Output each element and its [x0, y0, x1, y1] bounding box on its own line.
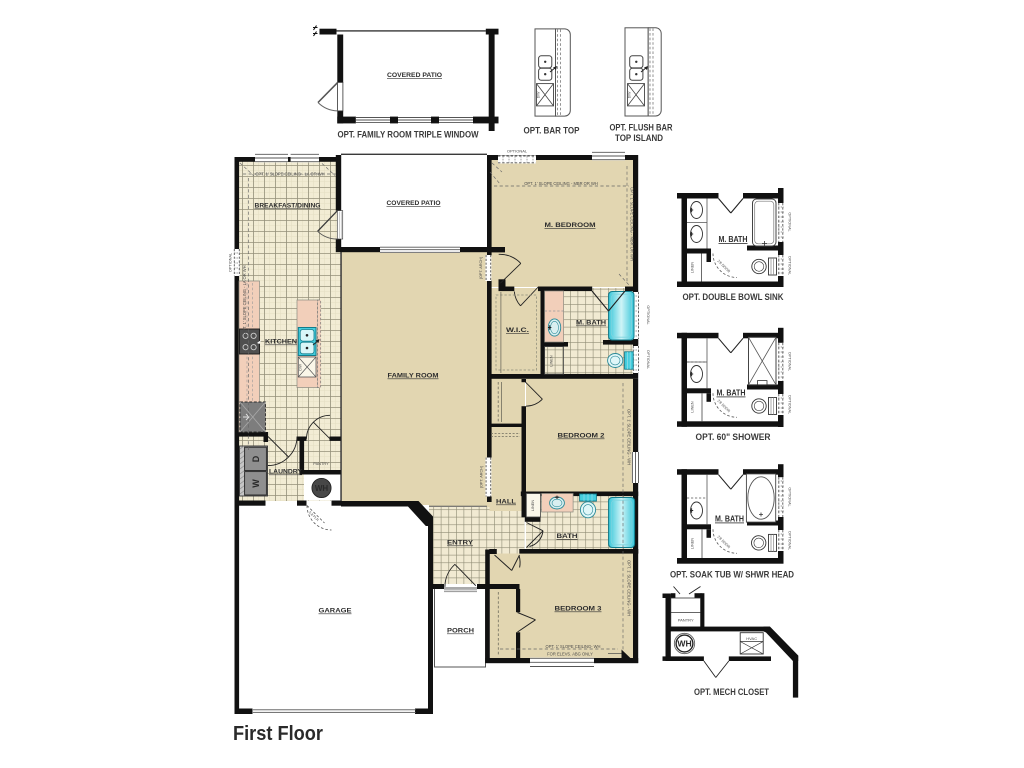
svg-text:WH: WH — [677, 639, 691, 649]
svg-text:M. BATH: M. BATH — [717, 389, 746, 398]
svg-text:LINEN: LINEN — [550, 355, 554, 366]
svg-text:BREAKFAST/DINING: BREAKFAST/DINING — [255, 204, 321, 210]
svg-text:OPTIONAL: OPTIONAL — [787, 395, 791, 414]
svg-text:TOP ISLAND: TOP ISLAND — [615, 133, 663, 143]
svg-text:OPTIONAL: OPTIONAL — [787, 487, 791, 506]
svg-text:KITCHEN: KITCHEN — [265, 340, 297, 346]
svg-text:GARAGE: GARAGE — [319, 608, 352, 615]
svg-text:OPTIONAL: OPTIONAL — [787, 256, 791, 275]
svg-text:OPT. 1' SLOPE CEILING- WH: OPT. 1' SLOPE CEILING- WH — [546, 644, 601, 649]
svg-text:PANTRY: PANTRY — [313, 461, 329, 466]
svg-text:W.I.C.: W.I.C. — [506, 328, 529, 334]
svg-text:LAUNDRY: LAUNDRY — [269, 470, 302, 476]
svg-text:WH: WH — [315, 484, 329, 493]
svg-text:OPT. SOAK TUB W/ SHWR HEAD: OPT. SOAK TUB W/ SHWR HEAD — [670, 570, 794, 580]
svg-text:HVAC: HVAC — [746, 636, 757, 641]
svg-text:COVERED PATIO: COVERED PATIO — [387, 201, 441, 207]
svg-text:OPT. FAMILY ROOM TRIPLE WINDOW: OPT. FAMILY ROOM TRIPLE WINDOW — [338, 130, 479, 140]
svg-text:OPTIONAL: OPTIONAL — [646, 305, 650, 324]
svg-text:PORCH: PORCH — [447, 629, 474, 635]
svg-text:OPTIONAL: OPTIONAL — [229, 253, 233, 272]
svg-text:PANTRY: PANTRY — [678, 618, 694, 623]
svg-text:OPT. 1' SLOPE CEILING - LA OR: OPT. 1' SLOPE CEILING - LA OR WH — [242, 265, 247, 334]
svg-text:HALL: HALL — [496, 500, 516, 506]
svg-text:OPTIONAL: OPTIONAL — [507, 149, 528, 154]
svg-text:BATH: BATH — [557, 534, 578, 540]
svg-text:BEDROOM 2: BEDROOM 2 — [558, 433, 606, 440]
svg-text:D: D — [251, 455, 261, 462]
svg-text:OPTIONAL: OPTIONAL — [646, 350, 650, 369]
svg-text:OPT. DOUBLE BOWL SINK: OPT. DOUBLE BOWL SINK — [683, 292, 784, 302]
svg-text:OPT. 1' SLOPE CEILING - WH: OPT. 1' SLOPE CEILING - WH — [627, 409, 632, 465]
svg-text:OPT. 1' SLOPE CEILING - MBR OR: OPT. 1' SLOPE CEILING - MBR OR WH — [630, 187, 635, 261]
svg-text:LINEN: LINEN — [691, 401, 695, 412]
svg-text:D/W: D/W — [299, 363, 303, 370]
svg-text:D/W: D/W — [628, 91, 632, 98]
svg-text:LINEN: LINEN — [531, 500, 535, 511]
svg-text:M. BATH: M. BATH — [715, 515, 744, 524]
svg-text:LINEN: LINEN — [691, 538, 695, 549]
svg-text:M. BATH: M. BATH — [719, 235, 748, 244]
svg-text:OPT. 1' SLOPE CEILING - LA OR: OPT. 1' SLOPE CEILING - LA OR WH — [255, 172, 324, 177]
svg-text:FAMILY ROOM: FAMILY ROOM — [388, 373, 439, 380]
svg-text:(OPT. ARCH): (OPT. ARCH) — [479, 465, 483, 488]
svg-text:BEDROOM 3: BEDROOM 3 — [555, 606, 603, 613]
svg-text:OPT. 60" SHOWER: OPT. 60" SHOWER — [696, 432, 771, 442]
svg-text:OPT. 1' SLOPE CEILING - MBR OR: OPT. 1' SLOPE CEILING - MBR OR WH — [524, 181, 598, 186]
svg-text:COVERED PATIO: COVERED PATIO — [387, 72, 442, 79]
svg-text:First Floor: First Floor — [233, 722, 323, 745]
svg-text:FOR ELEVS. ABG ONLY: FOR ELEVS. ABG ONLY — [547, 651, 593, 656]
svg-text:M. BEDROOM: M. BEDROOM — [545, 222, 596, 229]
svg-text:OPTIONAL: OPTIONAL — [787, 212, 791, 231]
svg-text:OPT. FLUSH BAR: OPT. FLUSH BAR — [610, 123, 673, 133]
svg-text:ENTRY: ENTRY — [447, 541, 473, 547]
svg-text:OPTIONAL: OPTIONAL — [787, 352, 791, 371]
svg-text:OPT. MECH CLOSET: OPT. MECH CLOSET — [694, 687, 769, 697]
svg-text:(OPT. ARCH): (OPT. ARCH) — [479, 256, 483, 279]
svg-text:M. BATH: M. BATH — [576, 321, 606, 327]
svg-text:OPT. 1' SLOPE CEILING - WH: OPT. 1' SLOPE CEILING - WH — [627, 560, 632, 616]
svg-text:LINEN: LINEN — [691, 262, 695, 273]
svg-text:W: W — [251, 479, 261, 488]
svg-text:OPT. BAR TOP: OPT. BAR TOP — [524, 126, 580, 136]
svg-text:D/W: D/W — [537, 91, 541, 98]
svg-text:OPTIONAL: OPTIONAL — [787, 531, 791, 550]
